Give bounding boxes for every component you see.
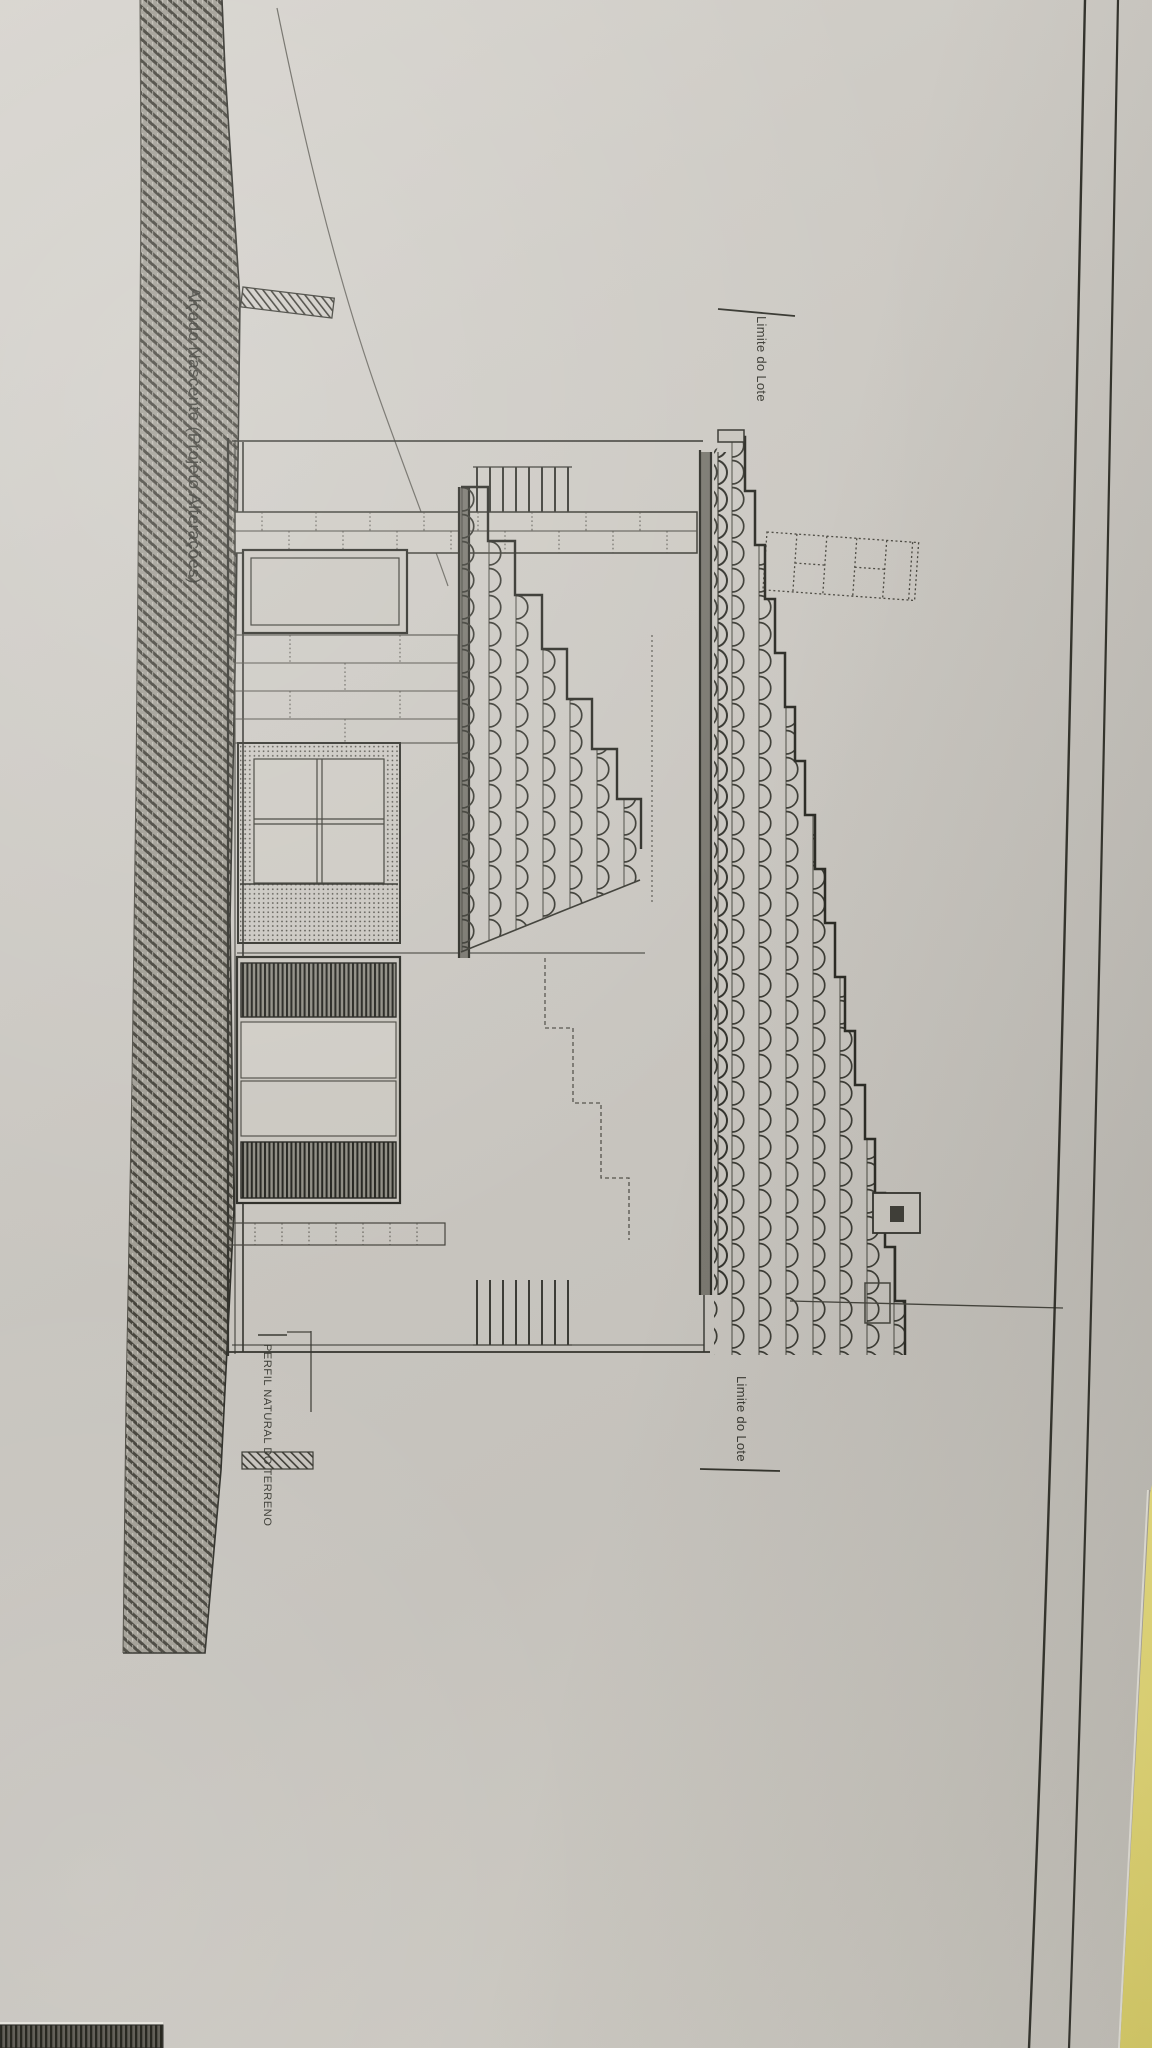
dark-underlay-strip (0, 2023, 163, 2048)
pane-2 (241, 1081, 396, 1136)
drawing-title: Alçado Nascente (Projeto Alterações) (181, 287, 207, 584)
ridge-cap (718, 430, 744, 442)
stone-cladding-panel (235, 635, 458, 743)
door-window (243, 550, 407, 633)
pane-1 (241, 1022, 396, 1078)
louver-comb-lower (473, 1280, 572, 1345)
porch-roof-tiles (458, 487, 641, 958)
photographed-drawing-sheet: Alçado Nascente (Projeto Alterações) Lim… (0, 0, 1152, 2048)
window-grid-mesh (238, 743, 400, 943)
ground-hatch-band (123, 0, 240, 1653)
lot-boundary-tick-bottom (700, 1469, 780, 1471)
lot-boundary-label-bottom: Limite do Lote (733, 1376, 749, 1462)
boundary-wall-section-top (241, 287, 335, 318)
lot-boundary-tick-top (718, 309, 795, 316)
frame-border-lines (1029, 0, 1118, 2048)
elevation-linework (0, 0, 1152, 2048)
chimney-cap (873, 1193, 920, 1233)
chimney-cap-band (763, 532, 919, 600)
lot-boundary-label-top: Limite do Lote (753, 316, 769, 402)
shutter-bottom (241, 1142, 396, 1198)
shutter-top (241, 963, 396, 1017)
wall-section-hatch (242, 1452, 313, 1469)
stone-course-low (228, 1223, 445, 1245)
house-elevation (228, 430, 1063, 1356)
window-louvered (237, 957, 400, 1203)
terrain-profile-label: PERFIL NATURAL DO TERRENO (260, 1344, 274, 1526)
